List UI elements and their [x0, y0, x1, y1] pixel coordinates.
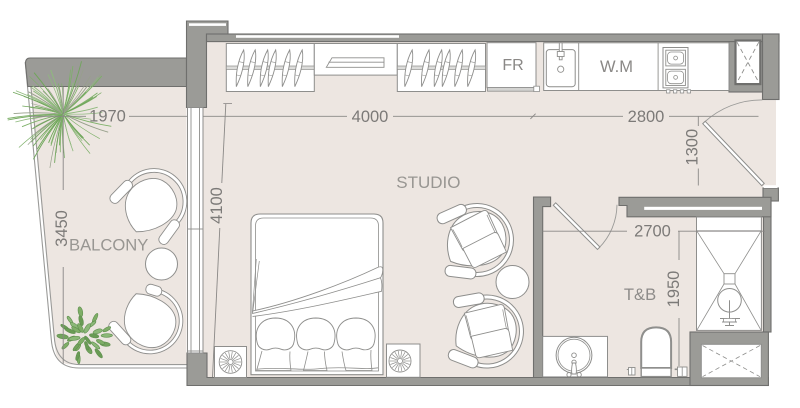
svg-text:FR: FR: [502, 57, 523, 74]
svg-text:1970: 1970: [89, 108, 126, 126]
svg-text:T&B: T&B: [624, 285, 656, 304]
svg-text:2800: 2800: [628, 108, 665, 126]
svg-text:W.M: W.M: [600, 58, 633, 76]
svg-text:STUDIO: STUDIO: [396, 173, 460, 192]
svg-text:2700: 2700: [634, 222, 671, 240]
svg-text:4000: 4000: [352, 108, 389, 126]
svg-text:1950: 1950: [665, 271, 683, 308]
svg-text:4100: 4100: [208, 187, 226, 224]
svg-text:1300: 1300: [684, 129, 702, 166]
svg-text:BALCONY: BALCONY: [69, 235, 148, 254]
